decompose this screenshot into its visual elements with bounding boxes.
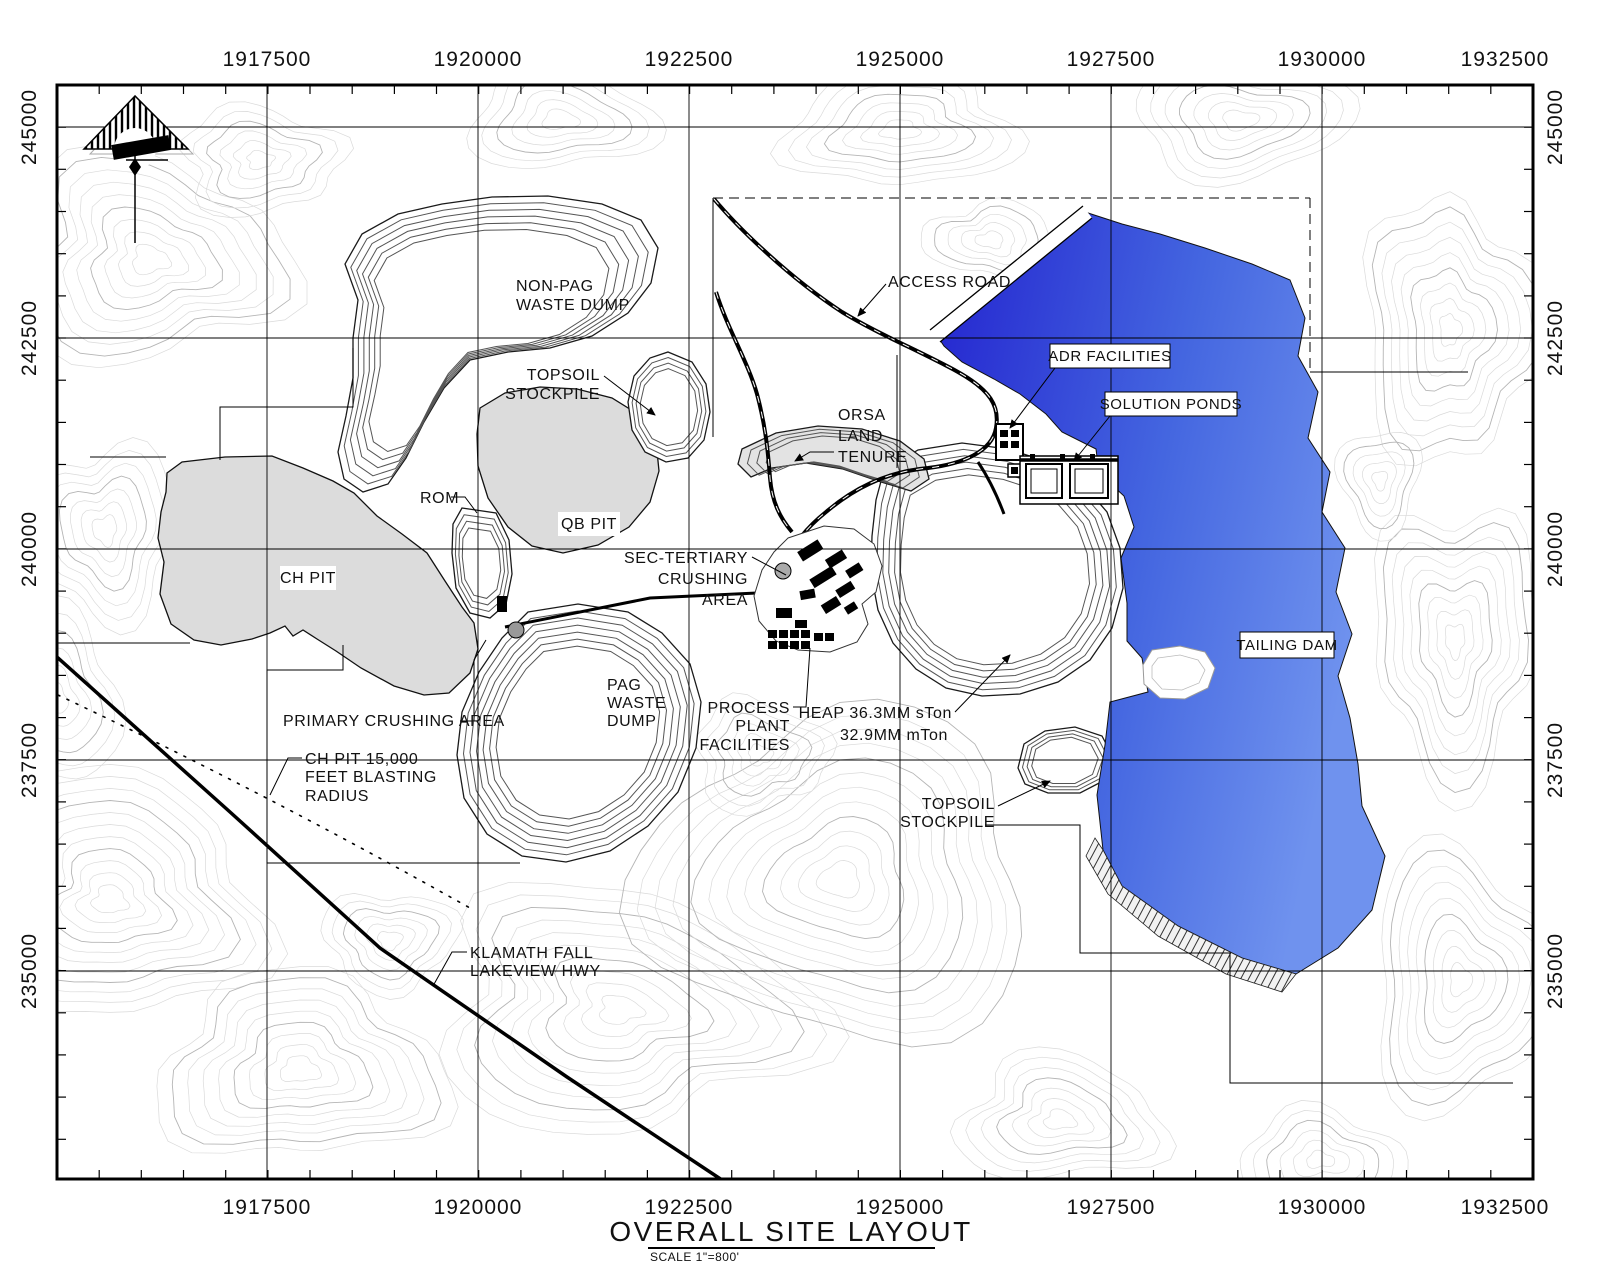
svg-text:WASTE: WASTE xyxy=(607,695,666,712)
svg-text:RADIUS: RADIUS xyxy=(305,788,369,805)
label-primary-crushing-area: PRIMARY CRUSHING AREA xyxy=(283,713,505,730)
svg-text:1930000: 1930000 xyxy=(1278,1196,1367,1219)
svg-text:STOCKPILE: STOCKPILE xyxy=(505,386,600,403)
svg-text:242500: 242500 xyxy=(18,300,41,376)
svg-text:242500: 242500 xyxy=(1544,300,1567,376)
x-label-top: 1917500 xyxy=(223,48,312,71)
svg-text:240000: 240000 xyxy=(1544,511,1567,587)
label-solution-ponds: SOLUTION PONDS xyxy=(1100,392,1243,416)
svg-text:1930000: 1930000 xyxy=(1278,48,1367,71)
svg-text:STOCKPILE: STOCKPILE xyxy=(900,814,995,831)
label-blasting-radius: CH PIT 15,000 xyxy=(305,751,418,768)
drawing-title: OVERALL SITE LAYOUT xyxy=(609,1216,972,1247)
svg-text:CH PIT: CH PIT xyxy=(280,570,336,587)
map-canvas: NON-PAG WASTE DUMP TOPSOIL STOCKPILE ACC… xyxy=(0,0,1600,1280)
svg-text:1932500: 1932500 xyxy=(1461,1196,1550,1219)
svg-text:SOLUTION PONDS: SOLUTION PONDS xyxy=(1100,396,1243,413)
svg-text:1927500: 1927500 xyxy=(1067,48,1156,71)
y-label-right: 245000 xyxy=(1544,89,1567,165)
svg-text:237500: 237500 xyxy=(1544,722,1567,798)
svg-text:TAILING DAM: TAILING DAM xyxy=(1236,637,1337,654)
scale-note: SCALE 1"=800' xyxy=(650,1250,739,1264)
svg-text:PLANT: PLANT xyxy=(735,718,790,735)
svg-text:FACILITIES: FACILITIES xyxy=(700,737,790,754)
svg-text:240000: 240000 xyxy=(18,511,41,587)
label-rom: ROM xyxy=(420,490,459,507)
svg-text:1925000: 1925000 xyxy=(856,48,945,71)
svg-text:235000: 235000 xyxy=(1544,933,1567,1009)
label-access-road: ACCESS ROAD xyxy=(888,274,1011,291)
label-orsa-land-tenure: ORSA xyxy=(838,407,886,424)
y-label-left: 245000 xyxy=(18,89,41,165)
label-ch-pit: CH PIT xyxy=(280,566,336,590)
label-topsoil-stockpile-nw: TOPSOIL xyxy=(527,367,600,384)
label-sec-tertiary-crushing: SEC-TERTIARY xyxy=(624,550,748,567)
svg-text:AREA: AREA xyxy=(702,592,748,609)
svg-text:1920000: 1920000 xyxy=(434,48,523,71)
label-pag-waste-dump: PAG xyxy=(607,677,641,694)
label-topsoil-stockpile-se: TOPSOIL xyxy=(922,796,995,813)
svg-text:FEET BLASTING: FEET BLASTING xyxy=(305,769,437,786)
svg-text:1927500: 1927500 xyxy=(1067,1196,1156,1219)
label-qb-pit: QB PIT xyxy=(558,512,620,536)
label-process-plant: PROCESS xyxy=(708,700,790,717)
svg-text:QB PIT: QB PIT xyxy=(561,516,617,533)
label-tailing-dam: TAILING DAM xyxy=(1236,632,1337,658)
svg-text:32.9MM mTon: 32.9MM mTon xyxy=(840,727,948,744)
svg-text:1932500: 1932500 xyxy=(1461,48,1550,71)
primary-crusher-circle xyxy=(508,622,524,638)
svg-text:ADR FACILITIES: ADR FACILITIES xyxy=(1048,348,1171,365)
svg-text:LAND: LAND xyxy=(838,428,883,445)
label-adr-facilities: ADR FACILITIES xyxy=(1048,344,1171,368)
label-heap-tonnage: HEAP 36.3MM sTon xyxy=(799,705,952,722)
svg-text:237500: 237500 xyxy=(18,722,41,798)
solution-ponds-structures xyxy=(1020,454,1118,504)
label-non-pag-waste-dump: NON-PAG xyxy=(516,278,594,295)
label-highway: KLAMATH FALL xyxy=(470,945,593,962)
svg-text:235000: 235000 xyxy=(18,933,41,1009)
svg-text:DUMP: DUMP xyxy=(607,713,657,730)
site-layout-drawing: NON-PAG WASTE DUMP TOPSOIL STOCKPILE ACC… xyxy=(0,0,1600,1280)
x-label-bottom: 1917500 xyxy=(223,1196,312,1219)
svg-text:1922500: 1922500 xyxy=(645,48,734,71)
svg-text:TENURE: TENURE xyxy=(838,449,907,466)
primary-crusher-building xyxy=(497,596,507,612)
svg-text:LAKEVIEW HWY: LAKEVIEW HWY xyxy=(470,963,601,980)
svg-text:CRUSHING: CRUSHING xyxy=(658,571,748,588)
svg-text:WASTE DUMP: WASTE DUMP xyxy=(516,297,630,314)
svg-text:1920000: 1920000 xyxy=(434,1196,523,1219)
